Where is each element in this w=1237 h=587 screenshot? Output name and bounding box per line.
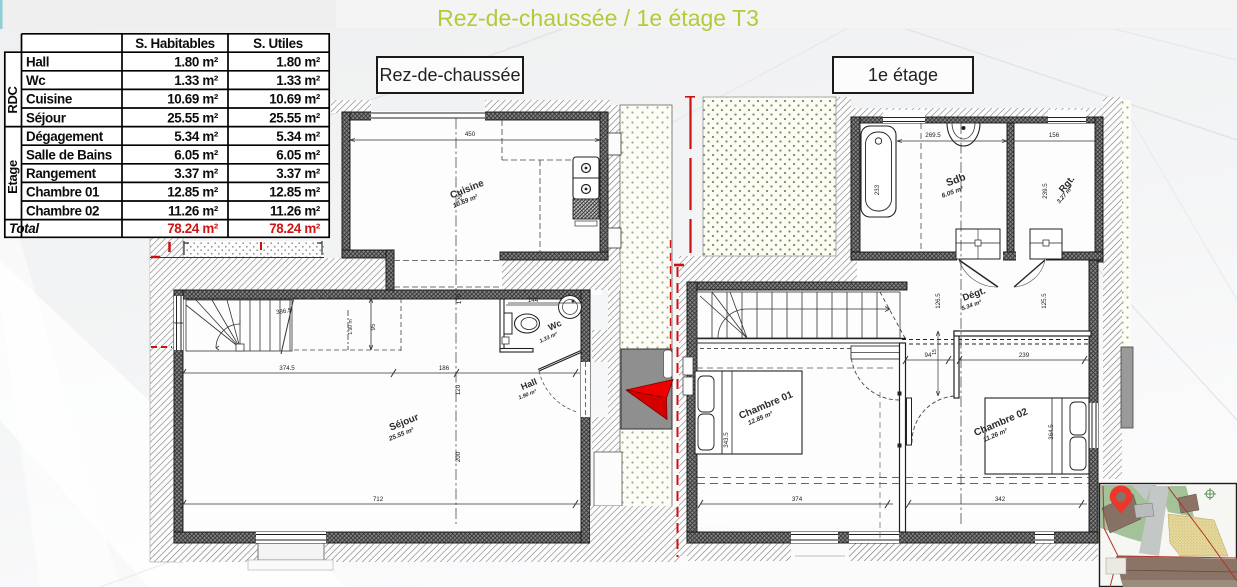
svg-text:S. Utiles: S. Utiles [253, 36, 303, 51]
svg-text:Chambre 02: Chambre 02 [26, 203, 99, 218]
svg-text:Rez-de-chaussée: Rez-de-chaussée [379, 65, 520, 85]
svg-text:Cuisine: Cuisine [26, 92, 72, 107]
svg-text:1.33 m²: 1.33 m² [276, 73, 321, 88]
svg-text:78.24 m²: 78.24 m² [167, 221, 219, 236]
svg-text:239: 239 [1019, 352, 1030, 359]
svg-text:179: 179 [456, 293, 463, 304]
svg-text:712: 712 [373, 496, 384, 503]
svg-text:374: 374 [792, 496, 803, 503]
svg-text:11.26 m²: 11.26 m² [270, 203, 321, 218]
svg-text:450: 450 [465, 131, 476, 138]
svg-text:1.80 m²: 1.80 m² [276, 55, 321, 70]
svg-text:1.80 m²: 1.80 m² [174, 55, 219, 70]
svg-text:Rez-de-chaussée / 1e étage T3: Rez-de-chaussée / 1e étage T3 [437, 5, 759, 31]
svg-text:3.37 m²: 3.37 m² [276, 166, 321, 181]
svg-text:Total: Total [9, 221, 39, 236]
svg-text:12.85 m²: 12.85 m² [269, 185, 321, 200]
svg-text:RDC: RDC [5, 85, 20, 113]
svg-text:1.33 m²: 1.33 m² [174, 73, 219, 88]
svg-text:Hall: Hall [26, 55, 49, 70]
svg-text:15: 15 [932, 349, 938, 355]
svg-text:78.24 m²: 78.24 m² [269, 221, 321, 236]
svg-text:200: 200 [455, 451, 462, 462]
svg-text:364.5: 364.5 [1048, 424, 1055, 440]
svg-text:3.37 m²: 3.37 m² [174, 166, 219, 181]
svg-text:1e étage: 1e étage [868, 65, 938, 85]
svg-text:25.55 m²: 25.55 m² [167, 110, 219, 125]
svg-text:233: 233 [874, 184, 881, 195]
svg-text:1.90 m: 1.90 m [348, 319, 354, 334]
svg-text:6.05 m²: 6.05 m² [276, 148, 321, 163]
svg-text:10.69 m²: 10.69 m² [269, 92, 321, 107]
svg-text:11.26 m²: 11.26 m² [168, 203, 219, 218]
svg-text:144: 144 [528, 297, 539, 304]
svg-text:125.5: 125.5 [1041, 293, 1048, 309]
svg-text:Etage: Etage [5, 160, 20, 194]
svg-text:342: 342 [995, 496, 1006, 503]
svg-text:Rangement: Rangement [26, 166, 97, 181]
svg-text:S. Habitables: S. Habitables [135, 36, 215, 51]
svg-text:95: 95 [370, 323, 377, 330]
svg-text:12.85 m²: 12.85 m² [167, 185, 219, 200]
svg-text:5.34 m²: 5.34 m² [174, 129, 219, 144]
svg-text:120: 120 [455, 384, 462, 395]
svg-text:6.05 m²: 6.05 m² [174, 148, 219, 163]
svg-text:25.55 m²: 25.55 m² [269, 110, 321, 125]
svg-text:343.5: 343.5 [723, 432, 730, 448]
svg-text:10.69 m²: 10.69 m² [167, 92, 219, 107]
svg-text:186: 186 [439, 365, 450, 372]
svg-text:239.5: 239.5 [1042, 183, 1049, 199]
svg-text:5.34 m²: 5.34 m² [276, 129, 321, 144]
svg-text:374.5: 374.5 [279, 365, 295, 372]
svg-text:156: 156 [1049, 132, 1060, 139]
svg-text:Dégagement: Dégagement [26, 129, 104, 144]
svg-text:Wc: Wc [26, 73, 46, 88]
svg-text:126.5: 126.5 [935, 293, 942, 309]
svg-text:Séjour: Séjour [26, 110, 67, 125]
svg-text:94: 94 [925, 352, 932, 359]
svg-text:Salle de Bains: Salle de Bains [26, 148, 112, 163]
svg-text:Chambre 01: Chambre 01 [26, 185, 100, 200]
svg-text:269.5: 269.5 [925, 132, 941, 139]
